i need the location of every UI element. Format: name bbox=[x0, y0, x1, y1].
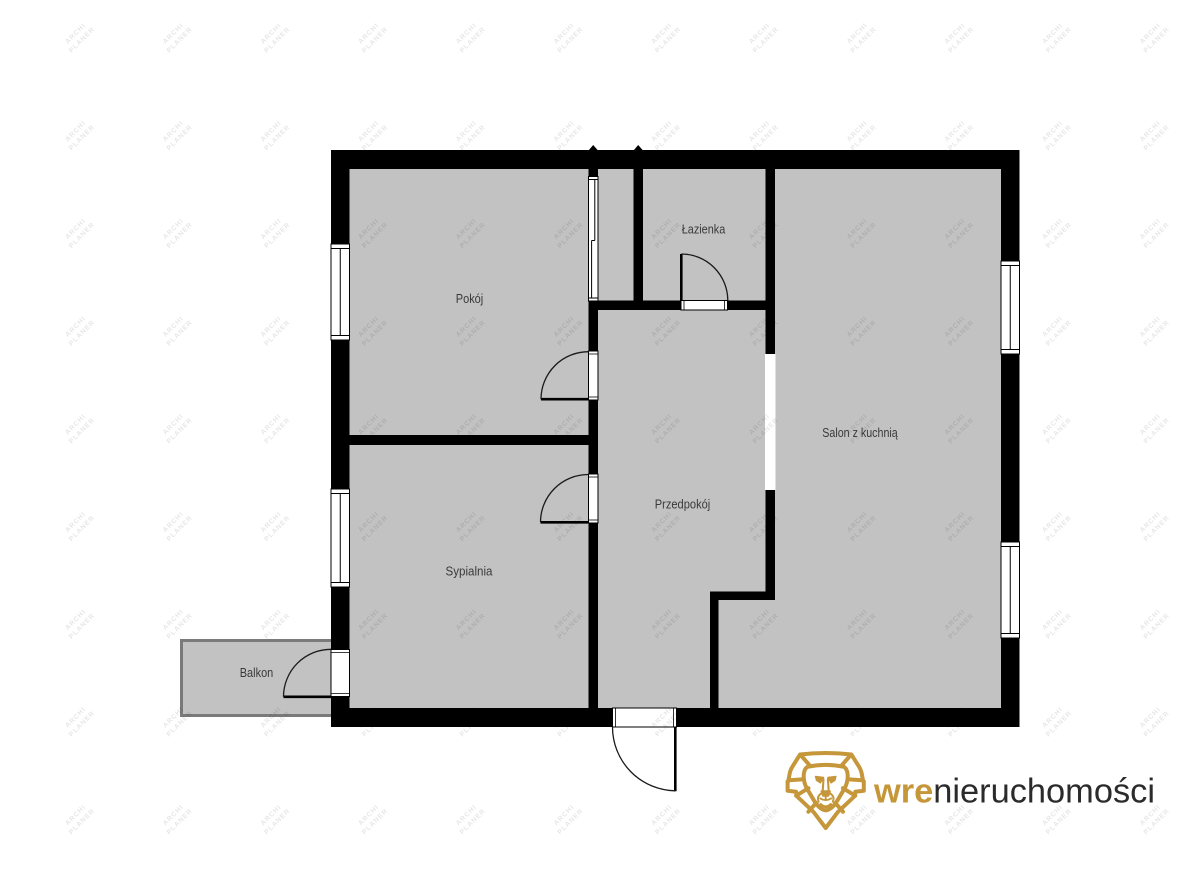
svg-text:Sypialnia: Sypialnia bbox=[446, 564, 494, 579]
svg-text:Przedpokój: Przedpokój bbox=[655, 497, 711, 512]
svg-text:Łazienka: Łazienka bbox=[682, 222, 726, 237]
svg-text:Pokój: Pokój bbox=[456, 291, 484, 306]
svg-text:wrenieruchomości: wrenieruchomości bbox=[873, 773, 1155, 811]
svg-text:Balkon: Balkon bbox=[240, 665, 274, 680]
